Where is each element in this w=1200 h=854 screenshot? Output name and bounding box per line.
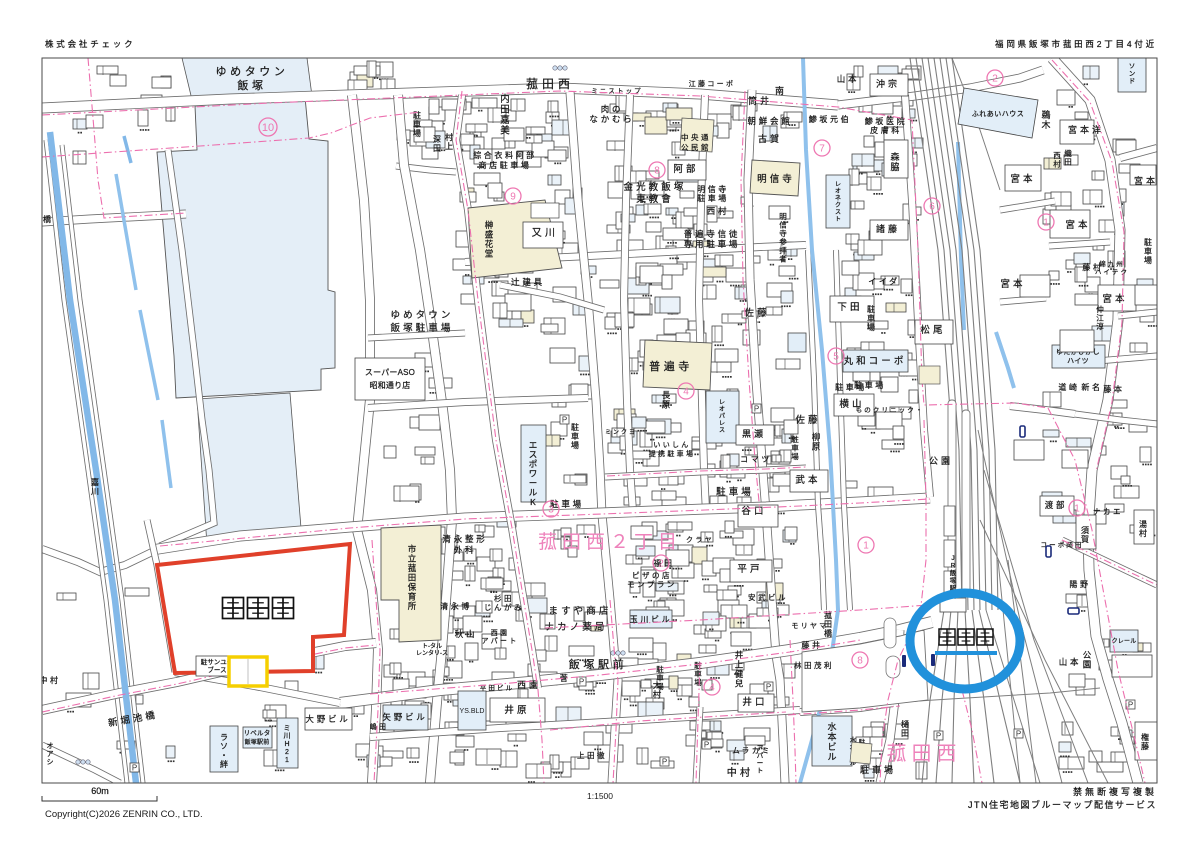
svg-text:山本: 山本	[837, 74, 860, 84]
svg-text:又川: 又川	[532, 227, 559, 239]
svg-text:P: P	[704, 741, 709, 750]
svg-text:ピザの店: ピザの店	[632, 570, 672, 580]
svg-text:提携駐車場: 提携駐車場	[649, 449, 696, 458]
svg-text:清永博: 清永博	[440, 601, 472, 611]
svg-text:P: P	[1128, 701, 1133, 710]
svg-text:平戸: 平戸	[737, 564, 762, 575]
svg-text:9: 9	[510, 192, 516, 203]
svg-text:P: P	[662, 758, 667, 767]
svg-text:8: 8	[857, 656, 863, 667]
svg-text:コマツ: コマツ	[740, 455, 772, 464]
svg-text:湯村: 湯村	[1139, 519, 1147, 538]
svg-text:モンプラン: モンプラン	[627, 580, 677, 589]
svg-text:皮膚科: 皮膚科	[870, 125, 902, 135]
svg-text:福岡県飯塚市菰田西2丁目4付近: 福岡県飯塚市菰田西2丁目4付近	[995, 39, 1157, 49]
svg-text:安武ビル: 安武ビル	[748, 592, 788, 602]
svg-text:ふれあいハウス: ふれあいハウス	[972, 110, 1025, 118]
svg-text:井原: 井原	[504, 704, 529, 716]
svg-text:ナカエ: ナカエ	[1093, 507, 1123, 516]
svg-text:3: 3	[548, 505, 554, 516]
svg-text:レオパレス: レオパレス	[719, 400, 725, 434]
svg-text:アパート: アパート	[481, 637, 518, 645]
svg-text:藤井: 藤井	[801, 640, 822, 650]
svg-text:エスポワールK: エスポワールK	[529, 440, 538, 507]
svg-text:駐車場: 駐車場	[697, 193, 729, 203]
svg-text:玉川ビル: 玉川ビル	[630, 615, 672, 624]
svg-text:佐藤: 佐藤	[795, 414, 820, 426]
svg-text:沖宗: 沖宗	[876, 78, 900, 89]
svg-text:60m: 60m	[91, 786, 109, 796]
svg-text:佐藤: 佐藤	[744, 307, 769, 319]
svg-text:10: 10	[262, 122, 274, 134]
svg-text:7: 7	[819, 144, 825, 155]
svg-text:公園: 公園	[1083, 650, 1092, 670]
svg-text:深田: 深田	[433, 135, 441, 153]
svg-text:ものクリニック・: ものクリニック・	[856, 406, 925, 414]
svg-text:市立菰田保育所: 市立菰田保育所	[408, 544, 417, 611]
svg-text:黒瀬: 黒瀬	[742, 428, 766, 439]
svg-text:P: P	[754, 405, 759, 414]
svg-text:秋山: 秋山	[455, 629, 478, 639]
svg-text:杉田: 杉田	[494, 593, 514, 603]
svg-text:ゆめタウン: ゆめタウン	[390, 310, 453, 321]
svg-text:須賀: 須賀	[1081, 526, 1089, 544]
svg-text:オアシ: オアシ	[47, 742, 54, 766]
svg-text:金光教飯塚: 金光教飯塚	[623, 181, 686, 193]
svg-text:仲江淳: 仲江淳	[1096, 304, 1104, 331]
svg-text:レオネクスト: レオネクスト	[835, 182, 841, 223]
svg-text:井口: 井口	[742, 696, 767, 708]
svg-text:新名: 新名	[1081, 382, 1102, 392]
svg-text:西園: 西園	[491, 629, 510, 637]
svg-text:外科: 外科	[454, 545, 477, 555]
svg-text:中央通: 中央通	[681, 132, 711, 142]
svg-text:綜合衣料阿部: 綜合衣料阿部	[473, 150, 537, 160]
svg-text:1: 1	[1074, 504, 1080, 515]
svg-text:井上健兒: 井上健兒	[735, 650, 744, 689]
svg-text:飯塚駐車場: 飯塚駐車場	[390, 322, 453, 334]
svg-text:駐車場: 駐車場	[413, 110, 421, 138]
svg-text:山本: 山本	[1059, 657, 1082, 667]
svg-text:菰田西２丁目: 菰田西２丁目	[538, 531, 682, 553]
svg-text:渡部: 渡部	[1045, 500, 1068, 510]
svg-text:橋: 橋	[43, 214, 51, 224]
svg-text:駐車場: 駐車場	[571, 422, 579, 450]
svg-text:肉の: 肉の	[601, 104, 624, 114]
svg-text:明信寺参拝者: 明信寺参拝者	[779, 212, 787, 264]
svg-text:柳原: 柳原	[812, 432, 821, 452]
svg-text:1: 1	[863, 541, 869, 552]
svg-text:宮本: 宮本	[1010, 173, 1035, 185]
svg-text:ラソ・絆: ラソ・絆	[220, 733, 228, 769]
svg-text:村上: 村上	[445, 132, 453, 151]
svg-text:商店駐車場: 商店駐車場	[479, 160, 532, 170]
svg-text:大村: 大村	[653, 680, 662, 700]
svg-text:ソンド: ソンド	[1129, 63, 1136, 85]
svg-text:JTN住宅地図ブルーマップ配信サービス: JTN住宅地図ブルーマップ配信サービス	[968, 799, 1157, 810]
svg-text:明信寺: 明信寺	[757, 173, 795, 185]
svg-text:宮本: 宮本	[1065, 219, 1090, 231]
svg-text:嶋田: 嶋田	[370, 722, 389, 731]
svg-text:菰田西: 菰田西	[526, 77, 574, 91]
svg-text:丸和コーポ: 丸和コーポ	[843, 355, 906, 367]
svg-text:中村: 中村	[39, 675, 60, 685]
svg-text:中村: 中村	[727, 766, 754, 779]
svg-text:嘉川: 嘉川	[91, 477, 99, 496]
svg-text:じんがみ: じんがみ	[484, 602, 524, 612]
svg-text:昭和通り店: 昭和通り店	[370, 380, 411, 390]
svg-text:森脇: 森脇	[890, 151, 899, 172]
svg-text:宮本: 宮本	[1000, 278, 1025, 290]
svg-text:4: 4	[683, 387, 689, 398]
svg-text:2: 2	[658, 559, 664, 570]
svg-text:レンタリ-ス: レンタリ-ス	[416, 649, 448, 657]
svg-text:飯塚: 飯塚	[237, 78, 266, 92]
svg-text:ますや商店: ますや商店	[548, 605, 611, 617]
svg-text:西村: 西村	[707, 206, 730, 216]
svg-text:4: 4	[709, 683, 715, 694]
svg-text:鯵坂元伯: 鯵坂元伯	[809, 114, 851, 124]
svg-text:榊盛花堂: 榊盛花堂	[485, 220, 494, 259]
svg-text:飯塚駅前: 飯塚駅前	[245, 738, 270, 746]
svg-text:クレール: クレール	[1112, 638, 1137, 645]
svg-text:公園: 公園	[929, 456, 953, 466]
svg-text:上田徹: 上田徹	[577, 750, 607, 760]
svg-text:矢野ビル: 矢野ビル	[382, 712, 427, 722]
svg-text:YS.BLD: YS.BLD	[460, 708, 485, 715]
svg-text:禁無断複写複製: 禁無断複写複製	[1073, 786, 1157, 797]
svg-text:駐車場: 駐車場	[550, 499, 584, 509]
svg-text:普遍寺: 普遍寺	[649, 359, 693, 373]
svg-text:辻建具: 辻建具	[511, 277, 545, 287]
svg-text:駐車場: 駐車場	[867, 304, 875, 332]
svg-text:内田嘉美: 内田嘉美	[500, 93, 510, 137]
svg-text:下田: 下田	[837, 302, 862, 313]
svg-text:クラヤ: クラヤ	[686, 536, 714, 544]
svg-text:菰田西: 菰田西	[887, 742, 962, 765]
svg-text:駐車場: 駐車場	[860, 764, 896, 775]
svg-text:P: P	[132, 764, 137, 773]
svg-text:P: P	[766, 683, 771, 692]
svg-text:武本: 武本	[795, 474, 820, 486]
svg-text:P: P	[579, 678, 584, 687]
svg-text:駐車場: 駐車場	[716, 486, 754, 498]
svg-text:2: 2	[992, 74, 998, 85]
svg-text:ブース: ブース	[207, 665, 226, 674]
svg-text:アパート: アパート	[757, 744, 764, 775]
svg-text:スーパーASO: スーパーASO	[365, 368, 415, 377]
svg-text:長原: 長原	[662, 390, 671, 410]
svg-text:織田: 織田	[1064, 148, 1072, 167]
svg-text:株式会社チェック: 株式会社チェック	[45, 39, 135, 49]
svg-text:樋田: 樋田	[901, 719, 909, 738]
svg-text:水本ビル: 水本ビル	[827, 721, 836, 762]
svg-text:普遍寺信徒: 普遍寺信徒	[684, 229, 741, 239]
svg-text:阿部: 阿部	[673, 163, 698, 175]
svg-text:藤村: 藤村	[1082, 262, 1103, 272]
svg-text:ト-タル: ト-タル	[422, 642, 442, 650]
svg-text:江藤コーポ: 江藤コーポ	[689, 79, 736, 88]
svg-text:イイダ: イイダ	[868, 276, 899, 286]
svg-text:権藤: 権藤	[1141, 732, 1149, 751]
svg-text:西村: 西村	[1053, 151, 1061, 169]
svg-text:ナカノ薬局: ナカノ薬局	[544, 621, 607, 633]
svg-text:Copyright(C)2026 ZENRIN CO., L: Copyright(C)2026 ZENRIN CO., LTD.	[45, 809, 203, 820]
svg-text:P: P	[562, 416, 567, 425]
svg-text:ハイツ: ハイツ	[1067, 358, 1089, 365]
svg-text:専用駐車場: 専用駐車場	[684, 239, 741, 249]
svg-text:駐車場: 駐車場	[1144, 237, 1152, 265]
svg-text:いいしん: いいしん	[653, 441, 690, 449]
svg-text:ムラカミ: ムラカミ	[732, 746, 772, 755]
svg-text:1: 1	[1043, 218, 1049, 229]
svg-text:P: P	[1016, 730, 1021, 739]
svg-text:林田茂利: 林田茂利	[794, 660, 834, 670]
svg-text:宮本: 宮本	[1134, 175, 1158, 186]
svg-text:東教會: 東教會	[636, 193, 674, 205]
svg-text:リベルタ: リベルタ	[244, 728, 271, 737]
svg-text:陽野: 陽野	[1069, 580, 1090, 589]
svg-text:鯵坂医院: 鯵坂医院	[865, 116, 907, 126]
svg-text:松尾: 松尾	[920, 324, 945, 336]
svg-text:5: 5	[833, 352, 839, 363]
svg-text:8: 8	[654, 166, 660, 177]
svg-text:明信寺: 明信寺	[697, 184, 729, 194]
svg-text:駐車場: 駐車場	[791, 434, 799, 461]
svg-text:駐車場: 駐車場	[835, 382, 867, 392]
svg-text:南: 南	[775, 85, 787, 96]
svg-text:鵜木: 鵜木	[1041, 109, 1050, 130]
svg-text:宮本: 宮本	[1102, 293, 1127, 305]
svg-text:諸藤: 諸藤	[876, 223, 900, 234]
svg-text:モリヤマ: モリヤマ	[791, 622, 828, 630]
svg-text:ゆめタウン: ゆめタウン	[216, 65, 289, 78]
svg-text:ミンクヨ: ミンクヨ	[605, 429, 637, 436]
svg-text:福田: 福田	[653, 559, 674, 568]
svg-text:清永整形: 清永整形	[442, 534, 487, 544]
svg-text:コーポ岡田: コーポ岡田	[1041, 541, 1084, 549]
svg-text:大野ビル: 大野ビル	[305, 714, 350, 724]
svg-text:朝鮮会館: 朝鮮会館	[747, 116, 792, 126]
svg-text:道崎: 道崎	[1058, 382, 1079, 392]
svg-text:公民館: 公民館	[681, 142, 711, 152]
svg-text:1:1500: 1:1500	[587, 791, 613, 801]
svg-text:6: 6	[929, 202, 935, 213]
svg-text:古賀: 古賀	[758, 133, 782, 144]
svg-text:P: P	[936, 732, 941, 741]
svg-text:なかむら: なかむら	[589, 114, 634, 124]
svg-text:飯塚駅前: 飯塚駅前	[569, 657, 627, 671]
